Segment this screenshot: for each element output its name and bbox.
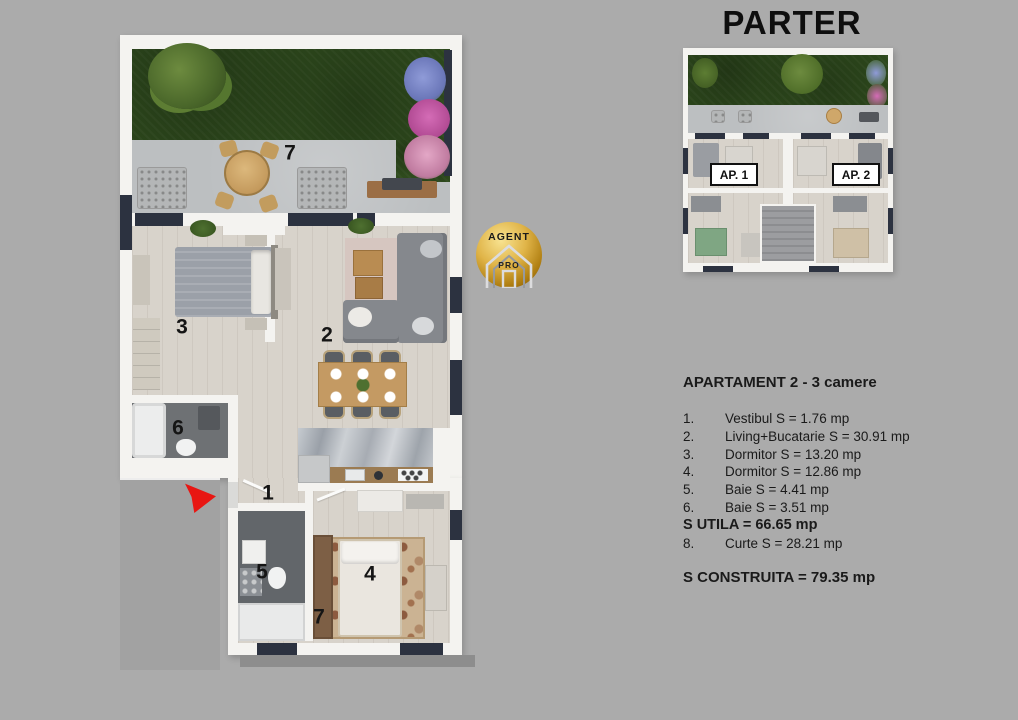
agency-logo: AGENT PRO [476, 222, 542, 288]
bench-seat [133, 255, 150, 305]
mini-window [683, 148, 688, 174]
terrace-table [224, 150, 270, 196]
mini-floorplan: AP. 1 AP. 2 [683, 48, 893, 272]
washing-machine [198, 406, 220, 430]
window-bedroom3-terrace [135, 213, 183, 226]
ap2-label: AP. 2 [832, 163, 880, 186]
stove [398, 469, 428, 481]
sofa-cushion [420, 240, 442, 258]
mini-window [888, 208, 893, 234]
ap1-label: AP. 1 [710, 163, 758, 186]
flowers-pink [404, 135, 450, 179]
window-living-right [450, 277, 462, 313]
row-number: 3. [683, 446, 725, 464]
wall-bath6-bottom [120, 458, 230, 478]
fridge [298, 455, 330, 483]
mini-tree-icon [692, 58, 718, 88]
sofa-cushion [348, 307, 372, 327]
row-number: 5. [683, 481, 725, 499]
row-text: Dormitor S = 13.20 mp [725, 446, 861, 464]
bathtub [132, 403, 166, 458]
mini-bed-beige [833, 228, 869, 258]
plant-icon [348, 218, 374, 234]
tree-icon [148, 43, 226, 109]
wall-bath5-bedroom4 [305, 483, 313, 641]
row-text: Dormitor S = 12.86 mp [725, 463, 861, 481]
apartment-title: APARTAMENT 2 - 3 camere [683, 374, 1003, 391]
detail-row-total-utila: S UTILA = 66.65 mp [683, 517, 1003, 535]
window-bedroom3-left [120, 195, 132, 250]
detail-row: 8. Curte S = 28.21 mp [683, 535, 1003, 553]
floorplan-poster: { "title": "PARTER", "logo": { "top_text… [0, 0, 1018, 720]
sun-lounger [297, 167, 347, 209]
bed-pillows [251, 250, 271, 314]
detail-row: 6. Baie S = 3.51 mp [683, 499, 1003, 517]
plant-icon [190, 220, 216, 237]
room-label-vestibul: 1 [262, 483, 274, 504]
window-living-terrace [288, 213, 353, 226]
logo-text-pro: PRO [498, 260, 519, 270]
kettle [374, 471, 383, 480]
room-label-bedroom3: 3 [176, 317, 188, 338]
nightstand [245, 318, 267, 330]
logo-text-agent: AGENT [488, 231, 530, 243]
window-bottom-right [400, 643, 443, 655]
mini-window [703, 266, 733, 272]
corridor-closet [357, 490, 403, 512]
corridor-shelf [406, 494, 444, 509]
row-number: 2. [683, 428, 725, 446]
row-number: 6. [683, 499, 725, 517]
toilet [268, 567, 286, 589]
detail-row: 2. Living+Bucatarie S = 30.91 mp [683, 428, 1003, 446]
mini-window [809, 266, 839, 272]
mini-window [888, 148, 893, 174]
mini-cross-wall-right [793, 188, 888, 193]
shower [238, 603, 305, 641]
nightstand [245, 235, 267, 246]
window-bottom-left [257, 643, 297, 655]
mini-lounger [711, 110, 725, 123]
row-text: Curte S = 28.21 mp [725, 535, 842, 553]
flowers-magenta [408, 99, 450, 139]
dresser [425, 565, 447, 611]
mini-flowers [866, 60, 886, 86]
detail-row: 1. Vestibul S = 1.76 mp [683, 410, 1003, 428]
mini-tree-icon [781, 54, 823, 94]
room-label-bath5: 5 [256, 562, 268, 583]
room-label-bath6: 6 [172, 418, 184, 439]
mini-dresser [741, 233, 761, 257]
wall-kitchen-right [433, 428, 450, 483]
agency-logo-badge: AGENT PRO [476, 222, 542, 288]
entry-driveway [120, 478, 220, 670]
room-label-terrace: 7 [284, 143, 296, 164]
row-text: Vestibul S = 1.76 mp [725, 410, 849, 428]
mini-bed-green [695, 228, 727, 256]
mini-lounger [738, 110, 752, 123]
tv-console [275, 248, 291, 310]
row-text: Baie S = 3.51 mp [725, 499, 829, 517]
mini-window [683, 208, 688, 234]
mini-kitchen [833, 196, 867, 212]
row-text: Living+Bucatarie S = 30.91 mp [725, 428, 910, 446]
total-constructed-area: S CONSTRUITA = 79.35 mp [683, 569, 1003, 586]
row-text: Baie S = 4.41 mp [725, 481, 829, 499]
window-bedroom4-right [450, 510, 462, 540]
sofa-cushion [412, 317, 434, 335]
row-number: 4. [683, 463, 725, 481]
main-floorplan: 7 3 2 6 1 5 4 7 [120, 35, 462, 668]
window-dining-right [450, 360, 462, 415]
coffee-table [353, 250, 383, 276]
page-title: PARTER [656, 4, 928, 42]
shelf-unit [133, 318, 160, 390]
sidewalk [240, 655, 475, 667]
detail-row: 5. Baie S = 4.41 mp [683, 481, 1003, 499]
mini-bed [797, 146, 827, 176]
entry-door [228, 482, 238, 508]
room-label-bedroom4: 4 [364, 564, 376, 585]
mini-bench [859, 112, 879, 122]
mini-cross-wall-left [688, 188, 783, 193]
grill [382, 178, 422, 190]
detail-row: 3. Dormitor S = 13.20 mp [683, 446, 1003, 464]
wall-alcove [223, 213, 285, 235]
toilet [176, 439, 196, 456]
apartment-details: APARTAMENT 2 - 3 camere 1. Vestibul S = … [683, 374, 1003, 586]
sun-lounger [137, 167, 187, 209]
kitchen-sink [345, 469, 365, 481]
coffee-table [355, 277, 383, 299]
flowers-blue [404, 57, 446, 103]
dining-table [318, 362, 407, 407]
room-label-living: 2 [321, 325, 333, 346]
mini-kitchen [691, 196, 721, 212]
bed-pillows [341, 542, 399, 564]
row-number: 8. [683, 535, 725, 553]
mini-terrace-table [826, 108, 842, 124]
detail-row: 4. Dormitor S = 12.86 mp [683, 463, 1003, 481]
mini-stairwell [760, 204, 816, 263]
row-number: 1. [683, 410, 725, 428]
row-text: S UTILA = 66.65 mp [683, 517, 817, 535]
room-label-lower7: 7 [313, 607, 325, 628]
